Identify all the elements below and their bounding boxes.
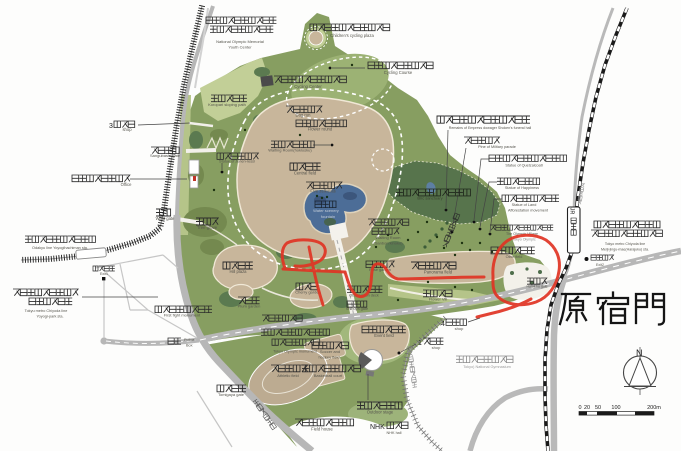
svg-text:West gate: West gate (156, 216, 175, 221)
svg-text:Statue of Junen-ressi: Statue of Junen-ressi (219, 160, 255, 164)
svg-text:Office: Office (121, 182, 133, 187)
svg-text:Odakyu line Yoyogihachiman sta: Odakyu line Yoyogihachiman sta. (32, 246, 88, 250)
svg-text:Exit2: Exit2 (596, 263, 604, 267)
svg-text:shop: shop (455, 326, 464, 331)
svg-text:shop: shop (432, 345, 441, 350)
svg-text:Birc sanctuary: Birc sanctuary (417, 196, 442, 201)
svg-text:National Olympic Memorial: National Olympic Memorial (216, 39, 264, 44)
svg-text:N: N (636, 348, 643, 358)
svg-text:Athletic field: Athletic field (277, 373, 299, 378)
svg-text:4: 4 (441, 321, 445, 328)
svg-text:100: 100 (611, 405, 620, 411)
svg-text:Plum garden: Plum garden (238, 304, 261, 309)
svg-text:NHK hall: NHK hall (387, 431, 402, 435)
svg-text:NHK: NHK (370, 424, 385, 431)
svg-text:Event field: Event field (374, 333, 394, 338)
svg-text:JR: JR (569, 208, 575, 215)
svg-text:(Sanbon kinoko): (Sanbon kinoko) (373, 241, 403, 246)
svg-text:Flower Vill: Flower Vill (429, 297, 447, 302)
svg-text:Basketball court: Basketball court (314, 373, 343, 378)
svg-text:Pine of Military parade: Pine of Military parade (478, 145, 516, 149)
svg-text:Shibuya gate: Shibuya gate (346, 307, 368, 311)
svg-text:0: 0 (578, 405, 581, 411)
svg-text:Youth Center: Youth Center (228, 45, 252, 50)
svg-text:Statue of Land: Statue of Land (512, 203, 537, 207)
svg-text:Tokyo) National Gymnasium: Tokyo) National Gymnasium (463, 365, 510, 369)
svg-text:Dog run: Dog run (296, 113, 312, 118)
svg-text:Children's cycling plaza: Children's cycling plaza (330, 33, 374, 38)
svg-text:Cycling Center: Cycling Center (294, 84, 322, 89)
svg-text:First fight monument: First fight monument (164, 313, 201, 318)
svg-text:Tree grove: Tree grove (197, 225, 218, 230)
svg-text:Waiting Room: Waiting Room (376, 235, 402, 240)
svg-text:fountain: fountain (321, 214, 335, 219)
svg-text:Sangubashi gate: Sangubashi gate (150, 153, 181, 158)
svg-text:Cycling Course: Cycling Course (384, 70, 413, 75)
svg-text:Exit1: Exit1 (100, 272, 108, 276)
svg-text:Koropari sloping path: Koropari sloping path (208, 102, 246, 107)
svg-text:50: 50 (595, 405, 601, 411)
svg-text:Olive field: Olive field (506, 255, 523, 259)
svg-text:Police: Police (184, 338, 194, 342)
svg-text:Meiji-jingu-mae(Harajuku) sta.: Meiji-jingu-mae(Harajuku) sta. (601, 248, 649, 252)
svg-text:Harajuku gate: Harajuku gate (526, 285, 547, 289)
svg-text:Central field: Central field (294, 171, 317, 176)
svg-text:Tokyo Olympic monument: Tokyo Olympic monument (273, 350, 318, 354)
svg-text:20: 20 (584, 405, 590, 411)
svg-text:Panorama field: Panorama field (424, 270, 453, 275)
svg-text:Statue of Quetzalcoatl: Statue of Quetzalcoatl (505, 164, 543, 168)
svg-text:Hill plaza: Hill plaza (230, 269, 248, 274)
svg-text:Five zelkovas: Five zelkovas (310, 189, 335, 194)
svg-text:Tomigaya gate: Tomigaya gate (218, 392, 245, 397)
svg-text:Yoyogi-park sta.: Yoyogi-park sta. (36, 315, 63, 319)
svg-text:200m: 200m (647, 405, 661, 411)
svg-text:Outdoor stage: Outdoor stage (367, 410, 394, 415)
svg-text:shop: shop (122, 127, 132, 132)
svg-text:Flower round: Flower round (308, 127, 333, 132)
svg-text:Box: Box (186, 344, 193, 348)
svg-text:Tokyu metro Chiyoda line: Tokyu metro Chiyoda line (25, 309, 68, 313)
svg-text:Field house: Field house (311, 427, 333, 432)
svg-text:1: 1 (418, 340, 422, 347)
svg-text:Soccer and: Soccer and (320, 349, 340, 354)
svg-text:Statue of Happiness: Statue of Happiness (505, 186, 539, 190)
svg-text:Cherry garden: Cherry garden (295, 290, 321, 295)
svg-text:hockey field: hockey field (318, 355, 339, 360)
svg-text:Afforestation movement: Afforestation movement (508, 209, 549, 213)
svg-text:Remains of Empress dowager Sho: Remains of Empress dowager Shoken's fune… (449, 126, 532, 130)
svg-text:Water scenery: Water scenery (313, 208, 339, 213)
svg-text:3: 3 (109, 123, 113, 130)
svg-text:Waiting Room(hoklosku): Waiting Room(hoklosku) (268, 148, 312, 153)
svg-text:Tokyo metro Chiyoda line: Tokyo metro Chiyoda line (605, 242, 645, 246)
